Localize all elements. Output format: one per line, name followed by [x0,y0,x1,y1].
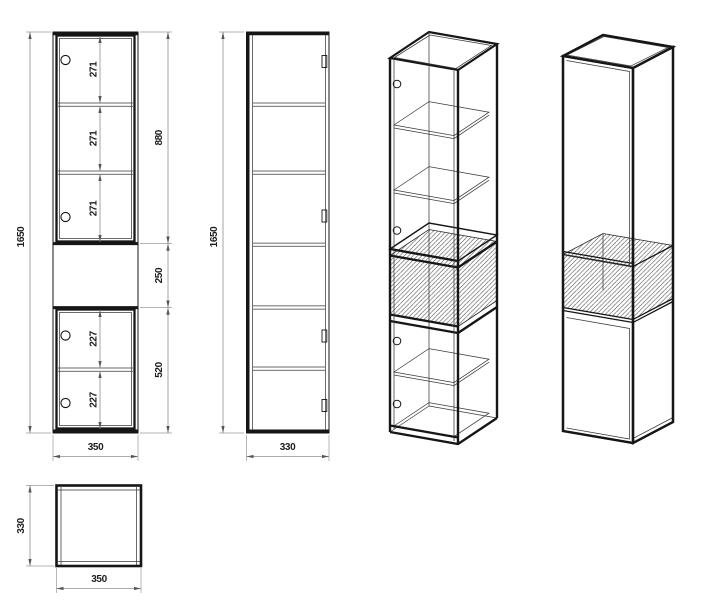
hinge-plate [322,210,327,222]
dim-label-niche: 250 [154,267,165,283]
iso-open-view [390,32,497,444]
dim-label-top-depth: 330 [16,517,27,533]
technical-drawing-page: 1650 350 271 271 271 227 227 880 250 [0,0,707,600]
dim-label-lower-shelf-1: 227 [89,330,100,346]
shelf-panel [394,102,489,139]
upper-door-outline [567,61,630,267]
dim-label-lower-shelf-2: 227 [89,391,100,407]
dim-label-front-total-height: 1650 [16,226,27,247]
dim-front-width: 350 [53,435,138,461]
hinge-hole [61,212,70,221]
hinge-hole [61,331,70,340]
iso-closed-view [563,35,673,443]
dim-front-total-height: 1650 [16,32,51,433]
dim-label-side-depth: 330 [280,442,296,453]
dim-label-top-width: 350 [91,574,107,585]
niche-hatch-area [390,230,497,327]
dim-label-upper-section: 880 [154,129,165,145]
lower-door-outline [567,318,630,440]
dim-top-width: 350 [57,568,142,593]
hinge-plate [322,400,327,412]
iso-open-top-face [390,32,497,70]
front-view: 1650 350 271 271 271 227 227 880 250 [16,32,172,461]
side-hinges [322,56,327,412]
shelf-panel [394,167,489,204]
top-view: 330 350 [16,486,141,594]
side-divider-lines [253,103,325,370]
technical-drawing-canvas: 1650 350 271 271 271 227 227 880 250 [0,0,707,600]
hinge-plate [322,56,327,68]
front-lower-door [57,310,135,429]
top-view-panel-lines [58,487,140,565]
dim-top-depth: 330 [16,486,54,567]
dim-label-shelf-1: 271 [89,61,100,77]
hinge-hole [61,55,70,64]
dim-label-lower-section: 520 [154,361,165,377]
dim-label-side-height: 1650 [209,226,220,247]
front-lower-divider-lines [58,368,133,371]
right-face-bottom-edge [633,418,673,439]
hinge-hole [61,398,70,407]
dim-label-front-width: 350 [88,442,104,453]
side-carcass-bands [247,32,330,433]
shelf-panel [394,349,489,386]
dim-side-depth: 330 [247,435,330,461]
hinge-plate [322,330,327,342]
front-carcass-outline [53,32,138,433]
dim-label-shelf-3: 271 [89,200,100,216]
dim-side-height: 1650 [209,32,244,433]
top-view-outline [57,486,142,567]
iso-closed-top-inner-ring [567,37,668,67]
dim-front-section-chain: 880 250 520 [140,32,172,433]
side-view: 1650 330 [209,32,329,461]
dim-front-shelf-spacings: 271 271 271 227 227 [89,36,101,429]
side-carcass-outline [247,32,330,433]
dim-label-shelf-2: 271 [89,130,100,146]
